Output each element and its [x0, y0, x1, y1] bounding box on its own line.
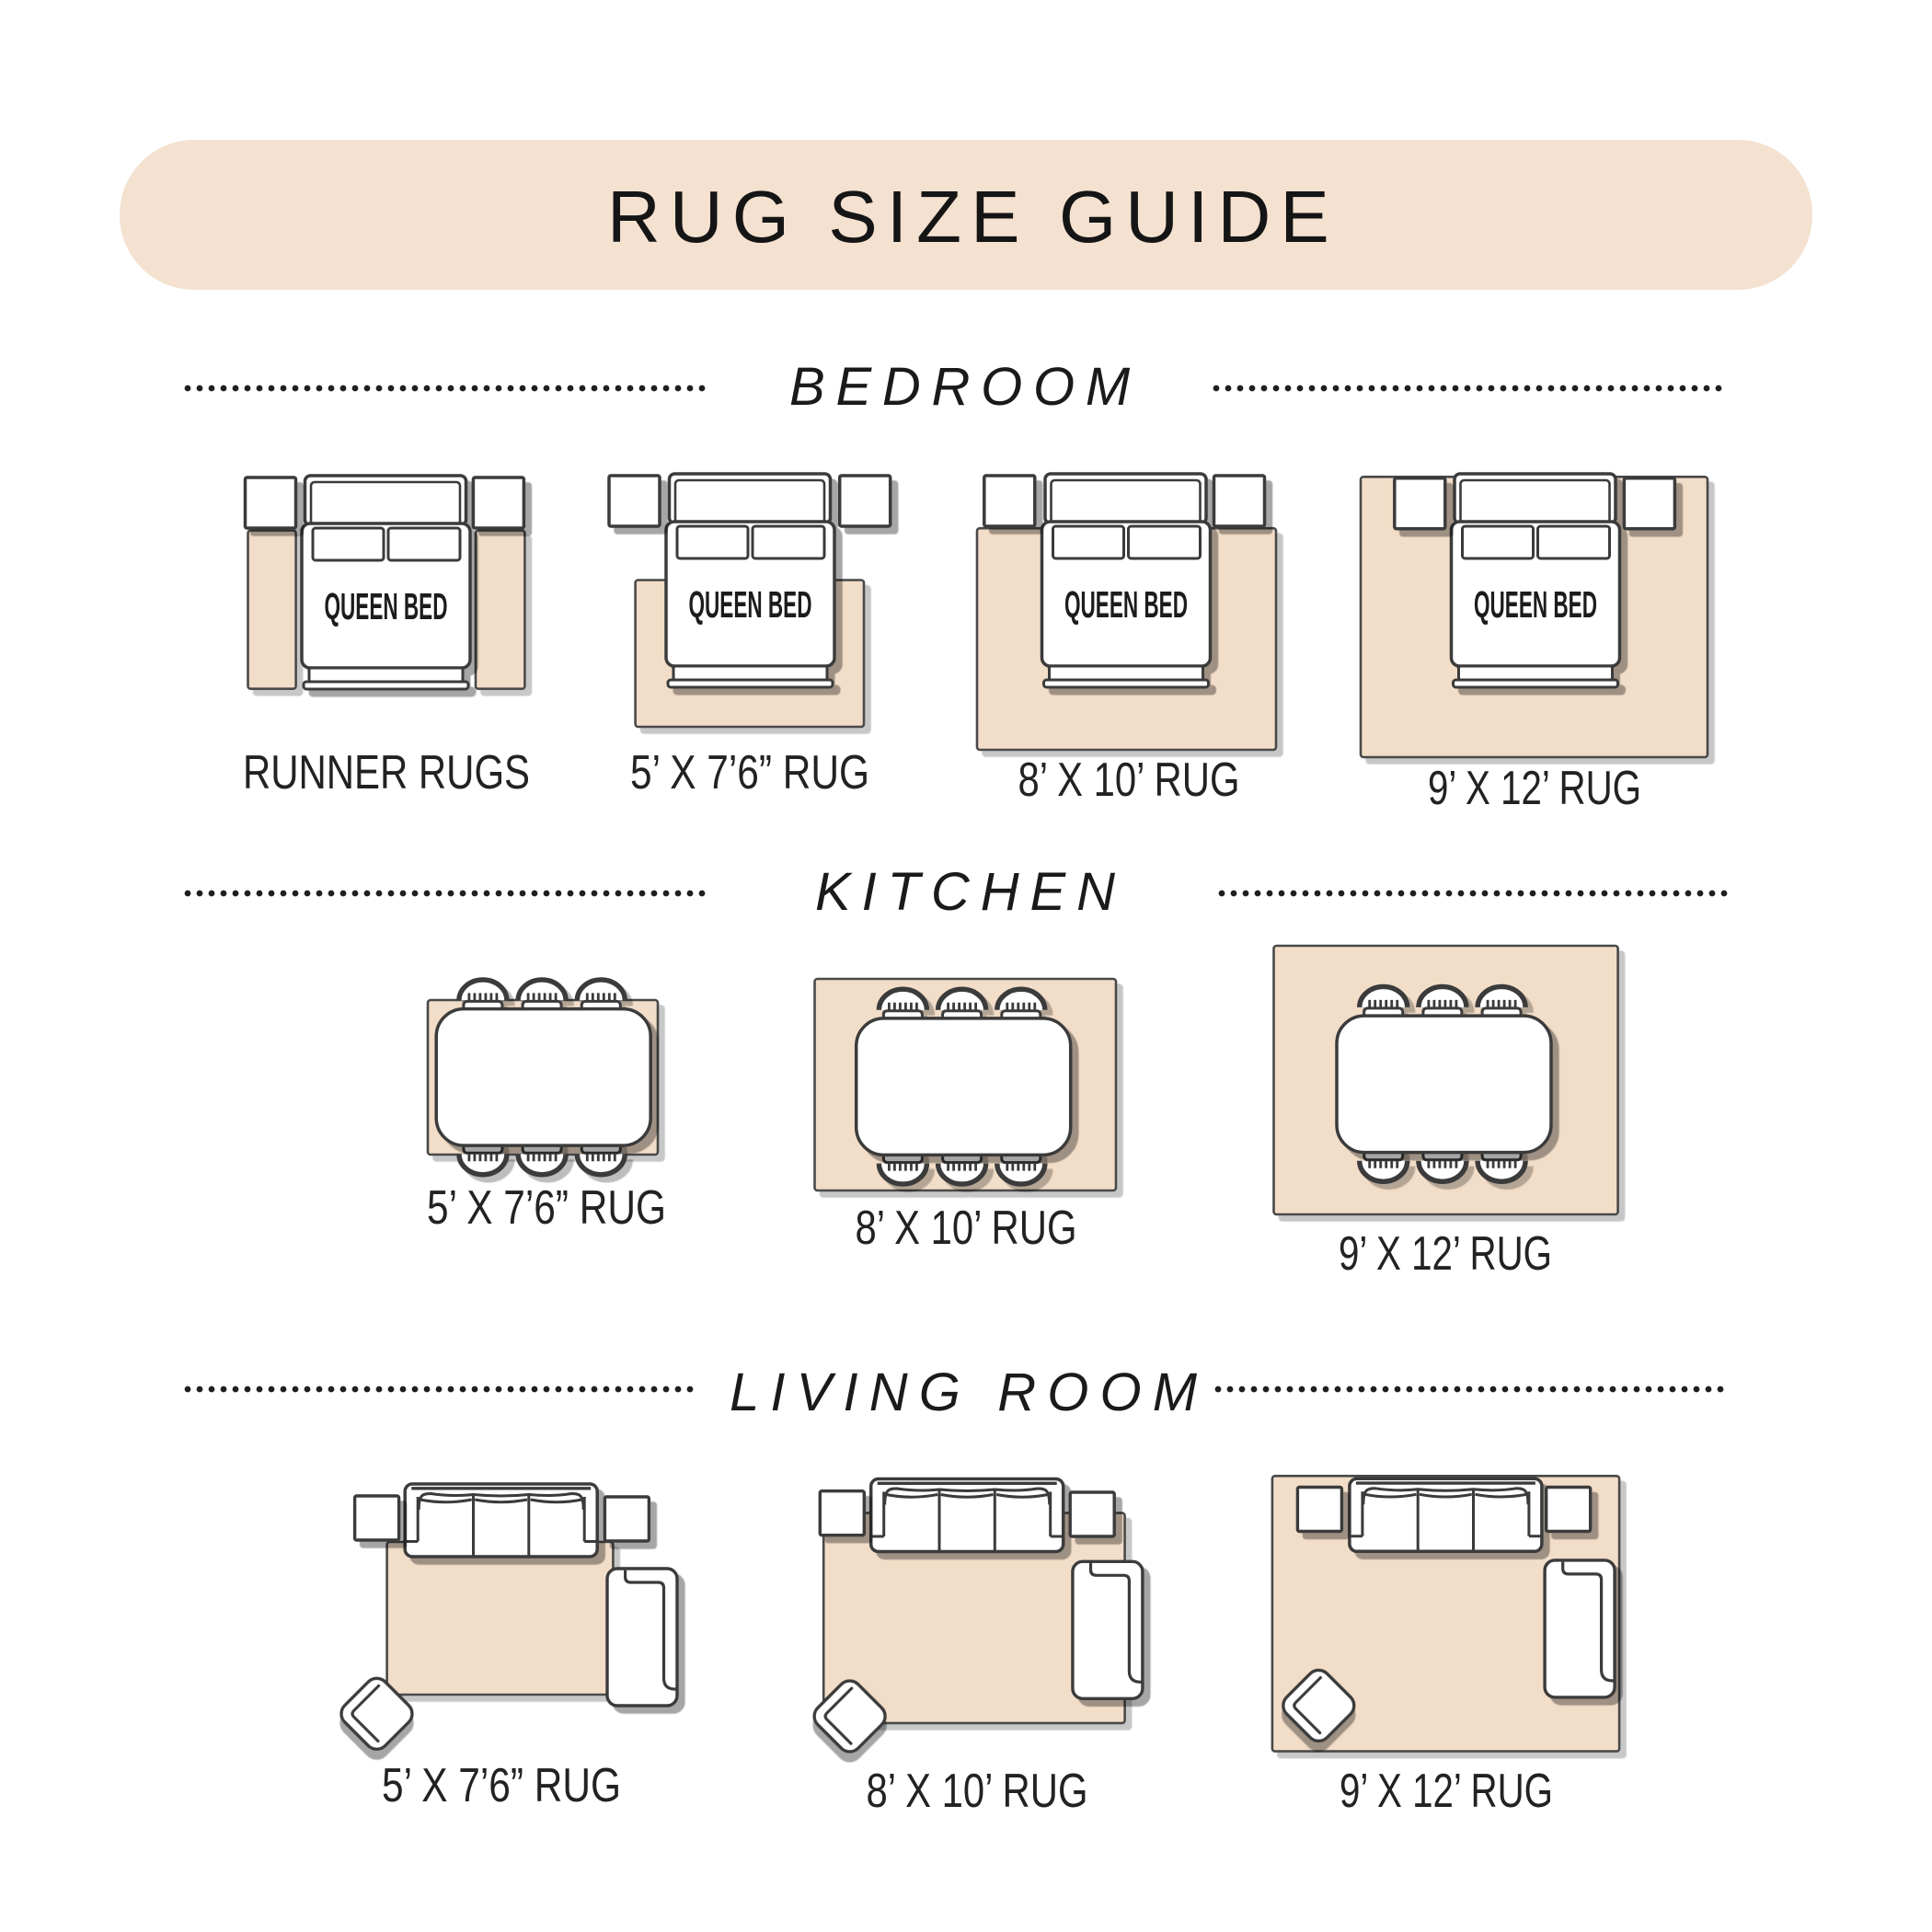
svg-text:9’ X 12’ RUG: 9’ X 12’ RUG — [1339, 1227, 1552, 1281]
svg-text:5’ X 7’6” RUG: 5’ X 7’6” RUG — [427, 1181, 666, 1235]
svg-text:LIVING ROOM: LIVING ROOM — [730, 1363, 1208, 1422]
svg-text:RUG SIZE GUIDE: RUG SIZE GUIDE — [607, 176, 1339, 258]
svg-text:5’ X 7’6” RUG: 5’ X 7’6” RUG — [630, 746, 869, 799]
svg-text:8’ X 10’ RUG: 8’ X 10’ RUG — [867, 1765, 1088, 1818]
svg-text:8’ X 10’ RUG: 8’ X 10’ RUG — [856, 1202, 1077, 1255]
svg-text:BEDROOM: BEDROOM — [789, 357, 1141, 417]
svg-text:KITCHEN: KITCHEN — [815, 862, 1126, 922]
svg-text:8’ X 10’ RUG: 8’ X 10’ RUG — [1018, 753, 1240, 807]
svg-text:9’ X 12’ RUG: 9’ X 12’ RUG — [1340, 1765, 1553, 1818]
svg-text:RUNNER RUGS: RUNNER RUGS — [243, 746, 530, 799]
svg-text:9’ X 12’ RUG: 9’ X 12’ RUG — [1428, 762, 1641, 815]
svg-text:5’ X 7’6” RUG: 5’ X 7’6” RUG — [382, 1759, 621, 1812]
